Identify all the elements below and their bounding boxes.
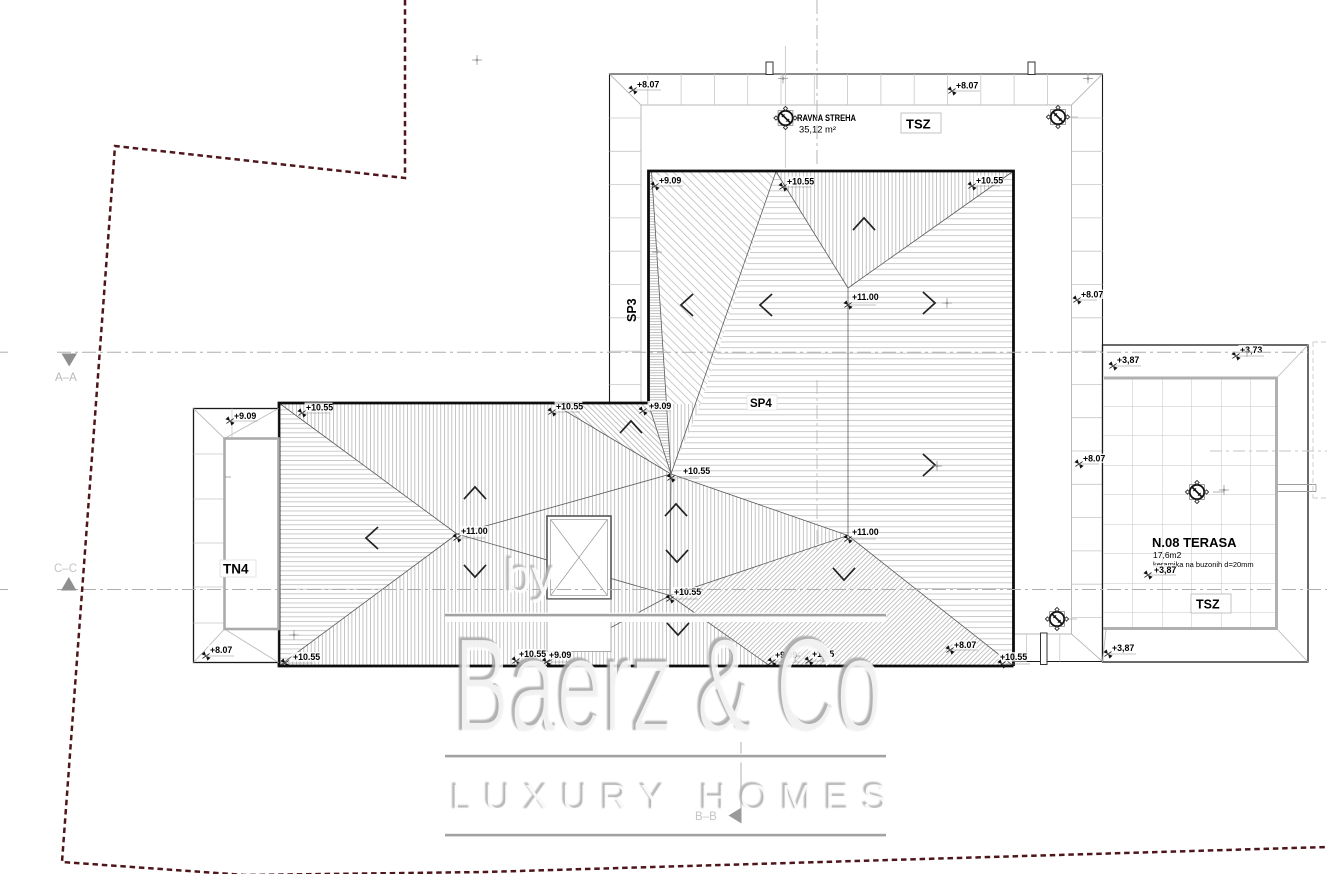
- svg-text:+9.09: +9.09: [659, 176, 681, 186]
- svg-text:C–C: C–C: [54, 563, 77, 575]
- svg-text:+9.09: +9.09: [649, 401, 671, 411]
- svg-text:+10.55: +10.55: [1000, 652, 1027, 662]
- svg-text:+10.55: +10.55: [293, 652, 320, 662]
- svg-text:+8.07: +8.07: [1083, 454, 1105, 464]
- svg-text:+8.07: +8.07: [1081, 290, 1103, 300]
- svg-text:N.08 TERASA: N.08 TERASA: [1152, 535, 1237, 550]
- svg-text:+3,87: +3,87: [1154, 565, 1176, 575]
- svg-text:+8.07: +8.07: [954, 640, 976, 650]
- svg-text:+11.00: +11.00: [461, 526, 488, 536]
- svg-text:17,6m2: 17,6m2: [1153, 550, 1182, 560]
- svg-text:+3,87: +3,87: [1112, 643, 1134, 653]
- svg-text:+8.07: +8.07: [956, 81, 978, 91]
- svg-text:+10.55: +10.55: [674, 587, 701, 597]
- svg-text:by: by: [506, 550, 556, 603]
- svg-text:+10.55: +10.55: [556, 402, 583, 412]
- svg-text:TN4: TN4: [223, 562, 249, 577]
- svg-text:SP4: SP4: [750, 398, 772, 410]
- svg-text:+11.00: +11.00: [852, 527, 879, 537]
- svg-text:TSZ: TSZ: [906, 117, 931, 132]
- svg-text:RAVNA STREHA: RAVNA STREHA: [797, 113, 856, 124]
- svg-text:TSZ: TSZ: [1196, 598, 1220, 612]
- svg-text:+10.55: +10.55: [787, 177, 814, 187]
- svg-text:+9.09: +9.09: [234, 411, 256, 421]
- svg-text:+8.07: +8.07: [637, 80, 659, 90]
- svg-text:+8.07: +8.07: [210, 645, 232, 655]
- svg-text:SP3: SP3: [625, 298, 639, 322]
- svg-text:Baerz & Co: Baerz & Co: [455, 611, 884, 762]
- svg-text:+3,87: +3,87: [1117, 355, 1139, 365]
- svg-text:+3,73: +3,73: [1240, 345, 1262, 355]
- svg-text:+11.00: +11.00: [852, 292, 879, 302]
- svg-text:+10.55: +10.55: [976, 176, 1003, 186]
- svg-text:A–A: A–A: [55, 372, 77, 384]
- svg-text:+10.55: +10.55: [306, 403, 333, 413]
- svg-text:+10.55: +10.55: [683, 466, 710, 476]
